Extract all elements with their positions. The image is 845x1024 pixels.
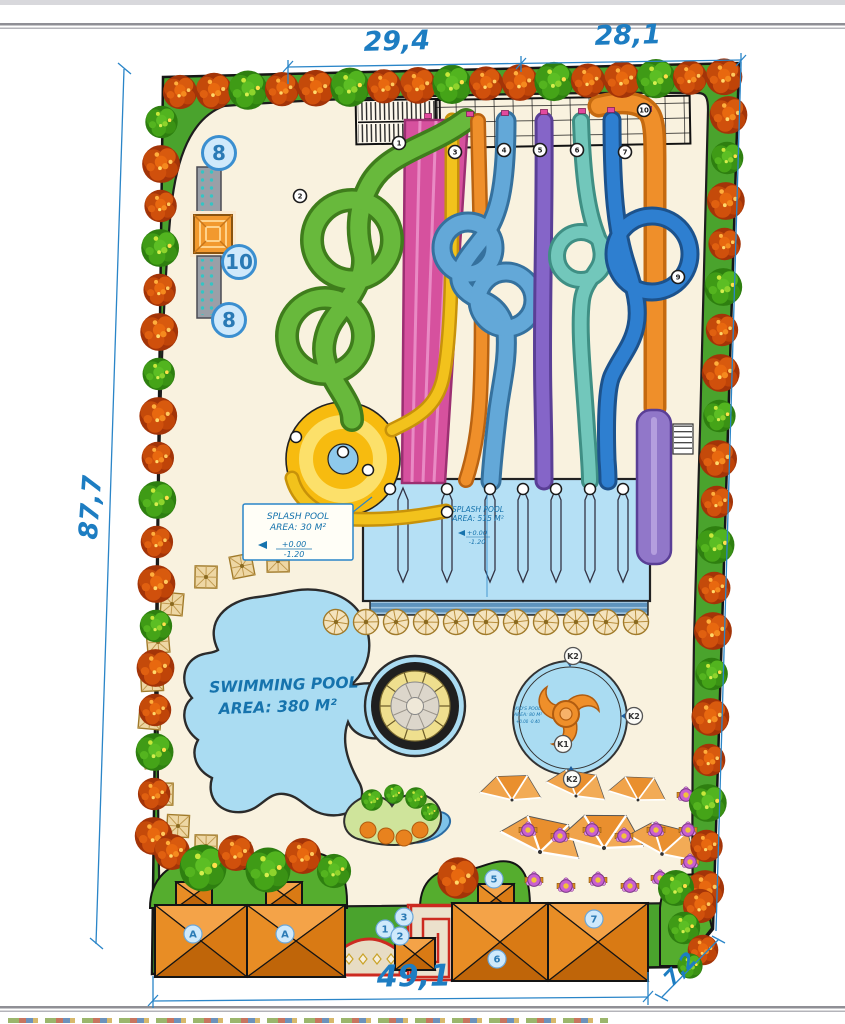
tree-red (702, 354, 740, 392)
tree-green (145, 106, 177, 138)
slide-gate-icon (502, 111, 509, 116)
splash-main-line1: SPLASH POOL (452, 505, 504, 514)
tree-red (367, 69, 401, 103)
slide-marker-s3-label: 3 (453, 149, 458, 157)
tree-red (699, 440, 737, 478)
dim-top-right: 28,1 (594, 19, 661, 52)
tree-green (136, 733, 174, 771)
point-marker (442, 484, 453, 495)
parasol-icon (473, 609, 499, 635)
tree-red (400, 67, 437, 104)
slide-gate-icon (579, 109, 586, 114)
tree-green (432, 65, 471, 104)
tree-green (697, 526, 735, 564)
tree-red (138, 778, 170, 810)
tree-green (246, 848, 291, 893)
building-roof (155, 905, 247, 977)
slide-marker-s9-label: 9 (676, 274, 681, 282)
point-marker (291, 432, 302, 443)
point-marker (551, 484, 562, 495)
kids-pool-line2: AREA: 80 M² (513, 712, 542, 718)
tree-red (694, 612, 732, 650)
building-marker-a2-label: A (281, 930, 289, 941)
building-roof (247, 905, 345, 977)
splash-box-line2: AREA: 30 M² (269, 523, 326, 533)
bottom-rule-dark (0, 1006, 845, 1009)
splash-box-level-bottom: -1.20 (284, 550, 305, 559)
tree-green (534, 62, 573, 101)
bush-icon (384, 784, 404, 804)
slide-marker-s4-label: 4 (502, 147, 507, 155)
tree-red (604, 61, 641, 98)
tree-red (502, 64, 539, 101)
splash-box-line1: SPLASH POOL (267, 512, 329, 522)
tree-red (196, 73, 233, 110)
building-marker-n5-label: 5 (491, 875, 498, 886)
splash-box-level-top: +0.00 (282, 540, 307, 549)
amenity-marker-m10-label: 10 (225, 250, 253, 274)
point-marker (618, 484, 629, 495)
tree-green (143, 358, 175, 390)
tree-red (691, 698, 729, 736)
tree-green (317, 854, 351, 888)
tree-red (571, 63, 605, 97)
splash-main-level-top: +0.00 (467, 529, 487, 537)
purple-slide (542, 121, 544, 481)
tree-red (140, 313, 178, 351)
point-marker (338, 447, 349, 458)
dim-left: 87,7 (74, 473, 108, 540)
point-marker (485, 484, 496, 495)
pool-bar (371, 662, 459, 750)
bush-icon (361, 789, 383, 811)
kids-pool-line1: KID'S POOL (515, 706, 541, 712)
bush-icon (421, 803, 439, 821)
tree-red (285, 838, 321, 874)
dim-top-left: 29,4 (363, 25, 430, 58)
tree-red (706, 58, 743, 95)
tree-green (228, 70, 267, 109)
point-marker (385, 484, 396, 495)
kids-marker-k1-label: K1 (557, 740, 569, 749)
parasol-icon (623, 609, 649, 635)
bush-icon (405, 787, 427, 809)
tree-green (704, 268, 742, 306)
tree-red (141, 526, 173, 558)
kids-pool-levels: +0.00 -0.40 (516, 719, 540, 724)
slide-gate-icon (541, 110, 548, 115)
slide-marker-s5-label: 5 (538, 147, 543, 155)
tree-red (139, 694, 171, 726)
slide-marker-s7-label: 7 (623, 149, 628, 157)
tree-green (330, 68, 369, 107)
point-marker (518, 484, 529, 495)
point-marker (585, 484, 596, 495)
building-marker-n7-label: 7 (591, 915, 598, 926)
dim-bottom: 49,1 (376, 958, 452, 994)
slide-marker-s1-label: 1 (397, 140, 402, 148)
tree-red (469, 66, 503, 100)
slide-marker-s6-label: 6 (575, 147, 580, 155)
slide-gate-icon (467, 112, 474, 117)
tree-green (140, 610, 172, 642)
point-marker (442, 507, 453, 518)
slide-gate-icon (425, 114, 432, 119)
parasol-icon (353, 609, 378, 634)
building-marker-n1-label: 1 (382, 925, 389, 936)
amenity-marker-m8a-label: 8 (212, 141, 226, 165)
tree-red (143, 274, 175, 306)
tree-red (163, 75, 197, 109)
splash-main-level-bottom: -1.20 (469, 538, 486, 546)
building-roof (452, 903, 548, 981)
slide-marker-s2-label: 2 (298, 193, 303, 201)
tree-red (142, 145, 180, 183)
splash-main-line2: AREA: 515 M² (451, 514, 503, 523)
building-marker-a1-label: A (189, 930, 197, 941)
kids-marker-k2a-label: K2 (567, 652, 579, 661)
tree-red (138, 565, 176, 603)
kids-marker-k2c-label: K2 (566, 775, 578, 784)
aquapark-master-plan: SPLASH POOL AREA: 30 M² +0.00 -1.20 SPLA… (0, 0, 845, 1024)
tree-red (137, 649, 175, 687)
parasol-icon (195, 566, 217, 588)
slide-gate-icon (608, 108, 615, 113)
tree-red (139, 397, 177, 435)
tree-red (437, 857, 478, 898)
splash-pool-label-box: SPLASH POOL AREA: 30 M² +0.00 -1.20 (243, 497, 372, 560)
tree-red (707, 182, 745, 220)
building-marker-n3-label: 3 (401, 913, 408, 924)
tree-red (142, 442, 174, 474)
building-marker-n6-label: 6 (494, 955, 501, 966)
footer-caption-strip (8, 1018, 608, 1023)
splash-pool (363, 479, 650, 615)
parasol-icon (413, 609, 438, 634)
tree-red (265, 72, 299, 106)
tree-red (144, 190, 176, 222)
building-marker-n2-label: 2 (397, 932, 404, 943)
plan-canvas: SPLASH POOL AREA: 30 M² +0.00 -1.20 SPLA… (0, 0, 845, 1024)
tree-red (710, 96, 748, 134)
bottom-rule-light (0, 1011, 845, 1013)
amenity-marker-m8b-label: 8 (222, 308, 236, 332)
tree-green (141, 229, 179, 267)
kids-marker-k2b-label: K2 (628, 712, 640, 721)
window-top-strip (0, 0, 845, 5)
tree-green (689, 784, 727, 822)
point-marker (363, 465, 374, 476)
tree-green (138, 481, 176, 519)
slide-marker-s10-label: 10 (639, 107, 649, 115)
tree-red (673, 61, 707, 95)
tree-green (636, 59, 675, 98)
tree-red (298, 70, 335, 107)
